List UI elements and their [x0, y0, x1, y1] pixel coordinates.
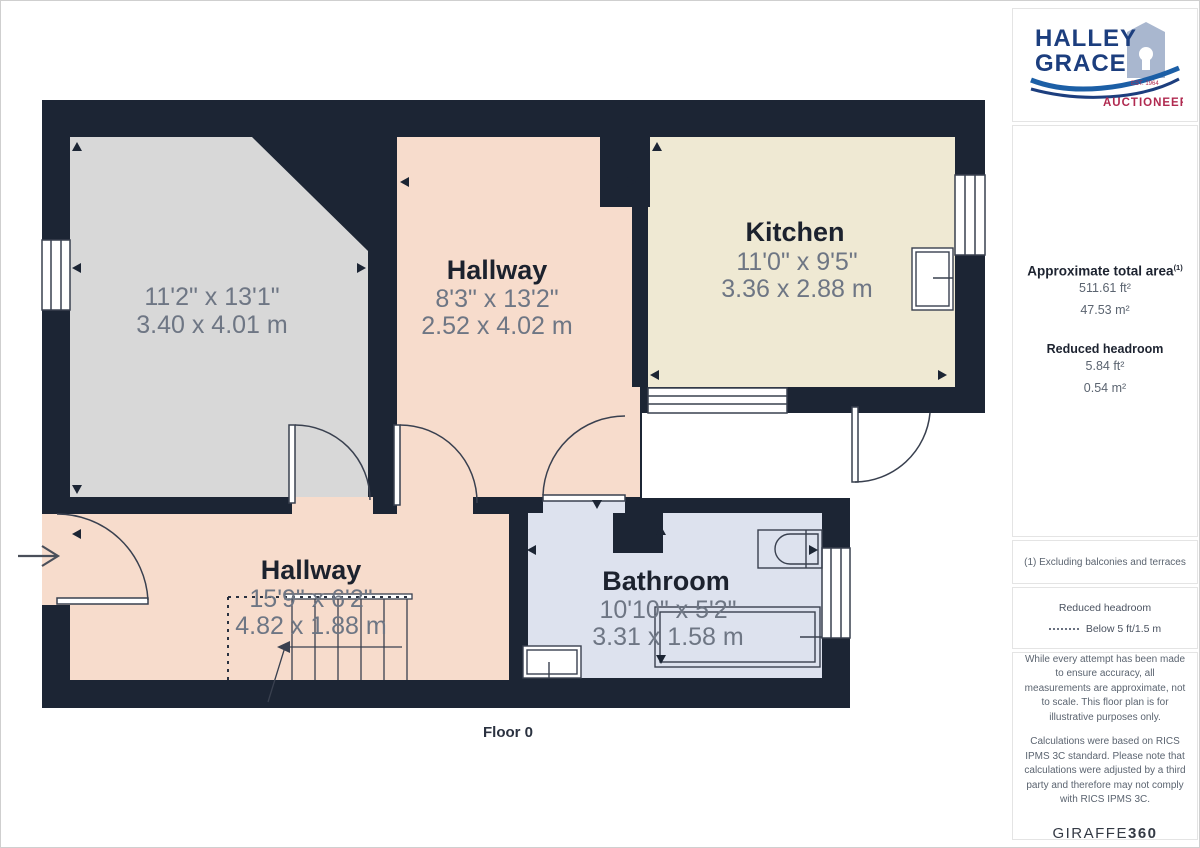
giraffe360-logo: GIRAFFE360 [1052, 823, 1157, 845]
bathroom-dim-imperial: 10'10" x 5'2" [599, 596, 736, 624]
entrance-recess [42, 514, 70, 605]
kitchen-dim-imperial: 11'0" x 9'5" [736, 248, 857, 276]
info-sidebar: HALLEY GRACE EST. 1964 AUCTIONEERS Appro… [1012, 8, 1198, 840]
window-grayroom-left [42, 240, 70, 310]
reduced-headroom-ft: 5.84 ft² [1086, 356, 1125, 378]
legend-panel: Reduced headroom Below 5 ft/1.5 m [1012, 587, 1198, 649]
total-area-ft: 511.61 ft² [1079, 278, 1131, 300]
window-kitchen-bottom [648, 388, 787, 413]
legend-value: Below 5 ft/1.5 m [1086, 623, 1161, 635]
hallway-lower-dim-metric: 4.82 x 1.88 m [235, 612, 386, 640]
disclaimer-paragraph-1: While every attempt has been made to ens… [1022, 653, 1188, 726]
agency-logo: HALLEY GRACE EST. 1964 AUCTIONEERS [1012, 8, 1198, 122]
kitchen-appliance [912, 248, 953, 310]
hallway-top-dim-metric: 2.52 x 4.02 m [421, 312, 572, 340]
logo-word-halley: HALLEY [1035, 25, 1137, 52]
hallway-lower-name: Hallway [261, 555, 362, 585]
floor-label: Floor 0 [483, 724, 533, 741]
area-summary-panel: Approximate total area(1) 511.61 ft² 47.… [1012, 125, 1198, 537]
window-bathroom-right [822, 548, 850, 638]
footnote-text: (1) Excluding balconies and terraces [1024, 557, 1186, 568]
footnote-panel: (1) Excluding balconies and terraces [1012, 540, 1198, 584]
kitchen-name: Kitchen [745, 217, 844, 247]
logo-est-text: EST. 1964 [1131, 81, 1159, 87]
giraffe360-number: 360 [1128, 825, 1158, 842]
window-kitchen-right [955, 175, 985, 255]
reduced-headroom-m: 0.54 m² [1084, 378, 1126, 400]
floorplan-canvas: 11'2" x 13'1" 3.40 x 4.01 m Hallway 8'3"… [0, 0, 1010, 848]
hallway-top-dim-imperial: 8'3" x 13'2" [435, 285, 558, 313]
bathroom-name: Bathroom [602, 566, 730, 596]
legend-title: Reduced headroom [1059, 602, 1151, 614]
disclaimer-paragraph-2: Calculations were based on RICS IPMS 3C … [1022, 735, 1188, 808]
door-kitchen-exterior [852, 407, 930, 482]
kitchen-dim-metric: 3.36 x 2.88 m [721, 275, 872, 303]
grayroom-door-opening [292, 497, 373, 514]
reduced-headroom-title: Reduced headroom [1047, 342, 1164, 356]
total-area-footnote-marker: (1) [1174, 263, 1183, 272]
disclaimer-panel: While every attempt has been made to ens… [1012, 652, 1198, 840]
hallway-lower-dim-imperial: 15'9" x 6'2" [249, 585, 372, 613]
grayroom-dim-metric: 3.40 x 4.01 m [136, 311, 287, 339]
logo-word-grace: GRACE [1035, 50, 1127, 77]
giraffe360-name: GIRAFFE [1052, 825, 1128, 842]
hallway-top-name: Hallway [447, 255, 548, 285]
dotted-line-icon [1049, 628, 1079, 630]
logo-auctioneers-text: AUCTIONEERS [1103, 97, 1183, 109]
total-area-m: 47.53 m² [1080, 300, 1129, 322]
total-area-label: Approximate total area [1027, 263, 1173, 278]
sink [523, 646, 581, 678]
grayroom-dim-imperial: 11'2" x 13'1" [144, 283, 279, 311]
bathroom-dim-metric: 3.31 x 1.58 m [592, 623, 743, 651]
agency-logo-graphic: HALLEY GRACE EST. 1964 AUCTIONEERS [1027, 16, 1183, 114]
total-area-title: Approximate total area(1) [1027, 263, 1182, 279]
hallway-passage [397, 497, 473, 514]
